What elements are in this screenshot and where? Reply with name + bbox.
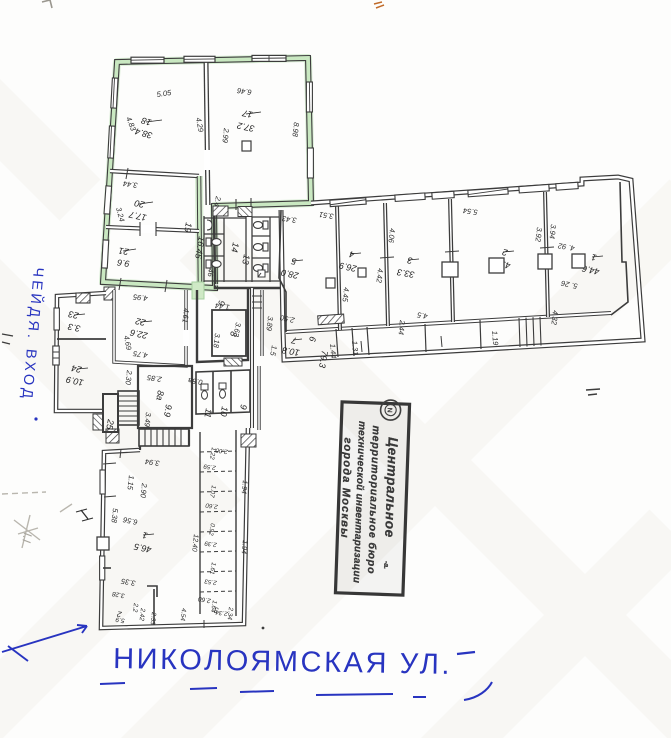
svg-text:19: 19 bbox=[182, 222, 194, 234]
svg-text:4.95: 4.95 bbox=[132, 292, 148, 303]
svg-text:9.9: 9.9 bbox=[162, 404, 174, 418]
svg-text:2.34: 2.34 bbox=[226, 606, 234, 621]
svg-text:4.42: 4.42 bbox=[374, 268, 385, 284]
svg-text:2.33: 2.33 bbox=[149, 611, 157, 626]
svg-text:N: N bbox=[386, 407, 393, 412]
svg-text:2.90: 2.90 bbox=[138, 482, 149, 499]
svg-text:1.31: 1.31 bbox=[350, 340, 360, 355]
svg-text:2.44: 2.44 bbox=[396, 319, 407, 335]
svg-text:-а.: -а. bbox=[382, 561, 389, 569]
svg-text:10: 10 bbox=[218, 406, 230, 418]
svg-text:4.61: 4.61 bbox=[180, 308, 190, 323]
svg-text:4.06: 4.06 bbox=[386, 228, 397, 244]
svg-text:3.49: 3.49 bbox=[142, 412, 153, 428]
svg-text:2.30: 2.30 bbox=[123, 369, 134, 386]
svg-text:14: 14 bbox=[229, 242, 241, 254]
svg-text:3.18: 3.18 bbox=[211, 333, 222, 349]
svg-text:1.94: 1.94 bbox=[240, 540, 248, 554]
svg-text:4.45: 4.45 bbox=[340, 287, 351, 303]
svg-text:2.2: 2.2 bbox=[131, 602, 139, 613]
svg-text:8a: 8a bbox=[154, 390, 166, 402]
svg-text:13: 13 bbox=[240, 254, 252, 266]
svg-text:3.94: 3.94 bbox=[547, 224, 557, 239]
svg-text:3.92: 3.92 bbox=[533, 227, 544, 243]
svg-text:3.89: 3.89 bbox=[264, 316, 275, 332]
svg-text:21: 21 bbox=[118, 246, 130, 257]
svg-text:1.94: 1.94 bbox=[240, 480, 248, 494]
svg-text:11: 11 bbox=[202, 408, 213, 419]
svg-text:1.15: 1.15 bbox=[125, 475, 136, 491]
svg-text:9.6: 9.6 bbox=[116, 257, 130, 269]
svg-text:5.38: 5.38 bbox=[109, 508, 120, 524]
svg-text:1.19: 1.19 bbox=[490, 330, 500, 346]
svg-text:2.42: 2.42 bbox=[138, 607, 146, 622]
svg-text:8.98: 8.98 bbox=[290, 122, 301, 138]
svg-text:2.99: 2.99 bbox=[220, 127, 231, 144]
svg-text:4.54: 4.54 bbox=[179, 608, 187, 622]
svg-text:4.32: 4.32 bbox=[549, 310, 560, 326]
svg-text:НИКОЛОЯМСКАЯ УЛ.: НИКОЛОЯМСКАЯ УЛ. bbox=[113, 643, 452, 681]
